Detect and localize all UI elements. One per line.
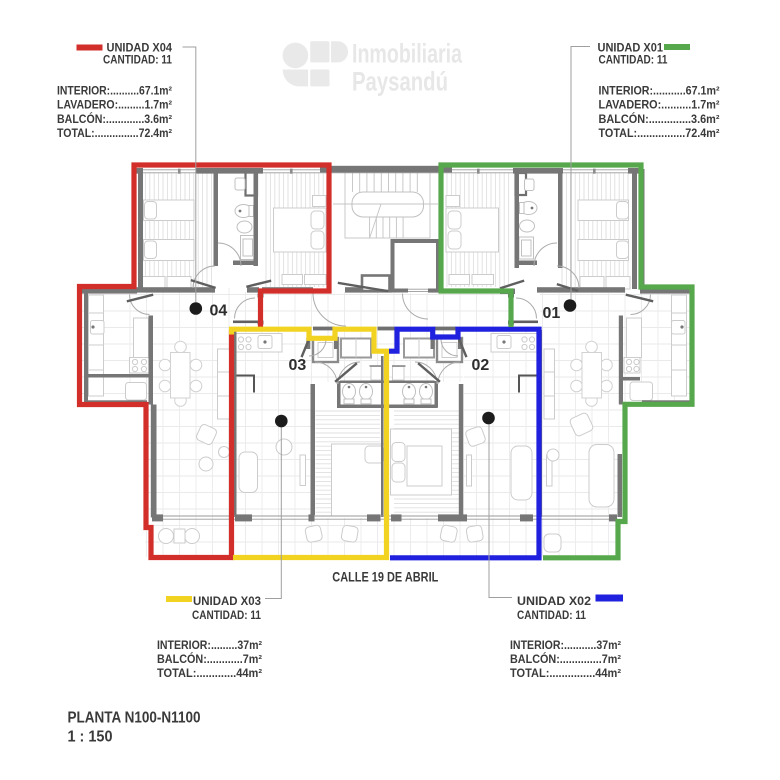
svg-text:TOTAL:...............44m²: TOTAL:...............44m² bbox=[510, 668, 621, 680]
svg-text:CALLE 19 DE ABRIL: CALLE 19 DE ABRIL bbox=[332, 570, 438, 585]
svg-text:LAVADERO:..........1.7m²: LAVADERO:..........1.7m² bbox=[599, 100, 720, 112]
svg-text:CANTIDAD: 11: CANTIDAD: 11 bbox=[103, 53, 172, 67]
svg-text:04: 04 bbox=[210, 303, 228, 320]
svg-text:Inmobiliaria: Inmobiliaria bbox=[352, 39, 463, 69]
svg-text:BALCÓN:.............3.6m²: BALCÓN:.............3.6m² bbox=[57, 113, 172, 126]
svg-text:CANTIDAD: 11: CANTIDAD: 11 bbox=[517, 608, 586, 622]
svg-text:INTERIOR:...........67.1m²: INTERIOR:...........67.1m² bbox=[599, 86, 720, 98]
svg-text:CANTIDAD: 11: CANTIDAD: 11 bbox=[599, 53, 668, 67]
svg-text:LAVADERO:.........1.7m²: LAVADERO:.........1.7m² bbox=[57, 100, 172, 112]
svg-text:1 : 150: 1 : 150 bbox=[68, 729, 113, 746]
svg-text:BALCÓN:..............3.6m²: BALCÓN:..............3.6m² bbox=[599, 113, 720, 126]
svg-text:Paysandú: Paysandú bbox=[352, 67, 448, 97]
svg-text:03: 03 bbox=[289, 357, 307, 374]
svg-text:BALCÓN:..............7m²: BALCÓN:..............7m² bbox=[510, 653, 621, 666]
svg-text:PLANTA N100-N1100: PLANTA N100-N1100 bbox=[68, 710, 201, 727]
svg-text:02: 02 bbox=[472, 357, 490, 374]
svg-text:INTERIOR:..........67.1m²: INTERIOR:..........67.1m² bbox=[57, 86, 172, 98]
svg-text:01: 01 bbox=[543, 305, 561, 322]
svg-text:TOTAL:................72.4m²: TOTAL:................72.4m² bbox=[599, 128, 720, 140]
svg-text:TOTAL:.............44m²: TOTAL:.............44m² bbox=[157, 668, 262, 680]
svg-text:INTERIOR:.........37m²: INTERIOR:.........37m² bbox=[157, 640, 262, 652]
svg-text:INTERIOR:...........37m²: INTERIOR:...........37m² bbox=[510, 640, 621, 652]
svg-text:UNIDAD X02: UNIDAD X02 bbox=[517, 594, 591, 608]
svg-text:UNIDAD X03: UNIDAD X03 bbox=[193, 594, 261, 608]
svg-text:TOTAL:...............72.4m²: TOTAL:...............72.4m² bbox=[57, 128, 172, 140]
svg-text:BALCÓN:............7m²: BALCÓN:............7m² bbox=[157, 653, 262, 666]
svg-text:CANTIDAD: 11: CANTIDAD: 11 bbox=[192, 608, 261, 622]
